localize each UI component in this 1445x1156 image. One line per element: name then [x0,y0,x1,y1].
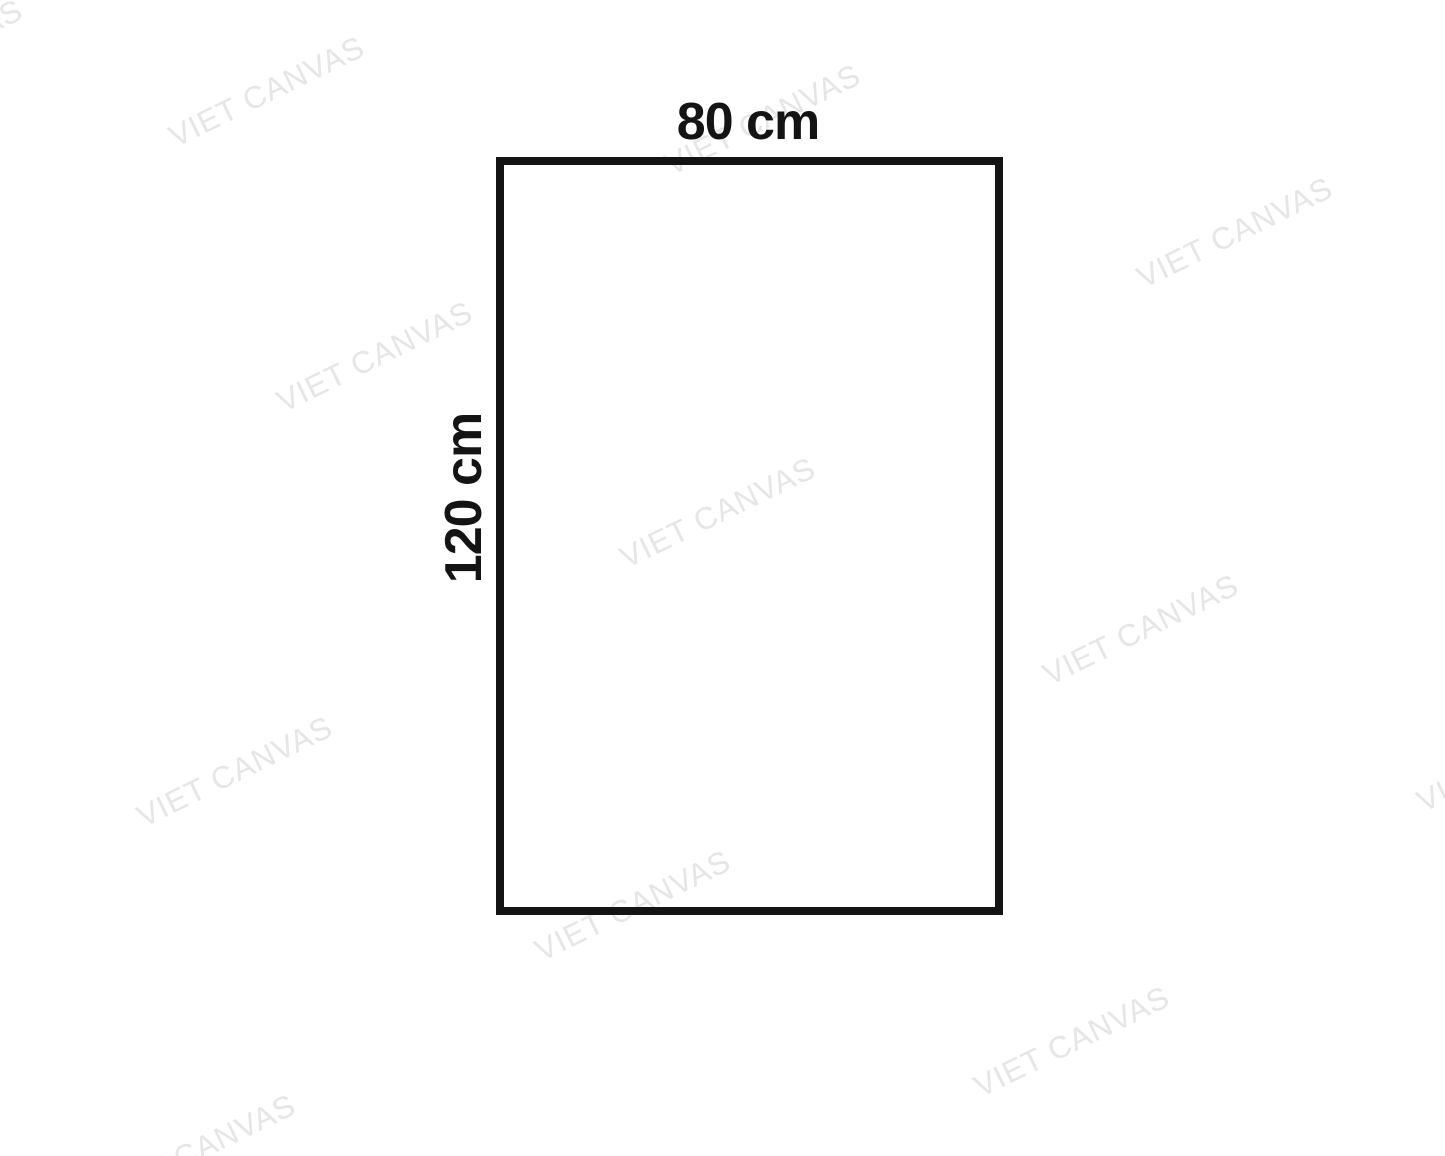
width-dimension-label: 80 cm [677,96,819,148]
canvas-rectangle [496,157,1003,915]
watermark-text: VIET CANVAS [1131,170,1338,296]
watermark-text: VIET CANVAS [94,1087,301,1156]
watermark-text: VIET CANVAS [1037,567,1244,693]
watermark-text: VIET CANVAS [0,0,29,118]
watermark-text: VIET CANVAS [131,709,338,835]
watermark-text: VIET CANVAS [271,294,478,420]
height-dimension-label: 120 cm [438,413,490,583]
dimension-diagram: VIET CANVAS VIET CANVAS VIET CANVAS VIET… [0,0,1445,1156]
watermark-text: VIET CANVAS [163,29,370,155]
watermark-text: VIET CANVAS [968,979,1175,1105]
watermark-text: VIET CANVAS [1411,694,1445,820]
